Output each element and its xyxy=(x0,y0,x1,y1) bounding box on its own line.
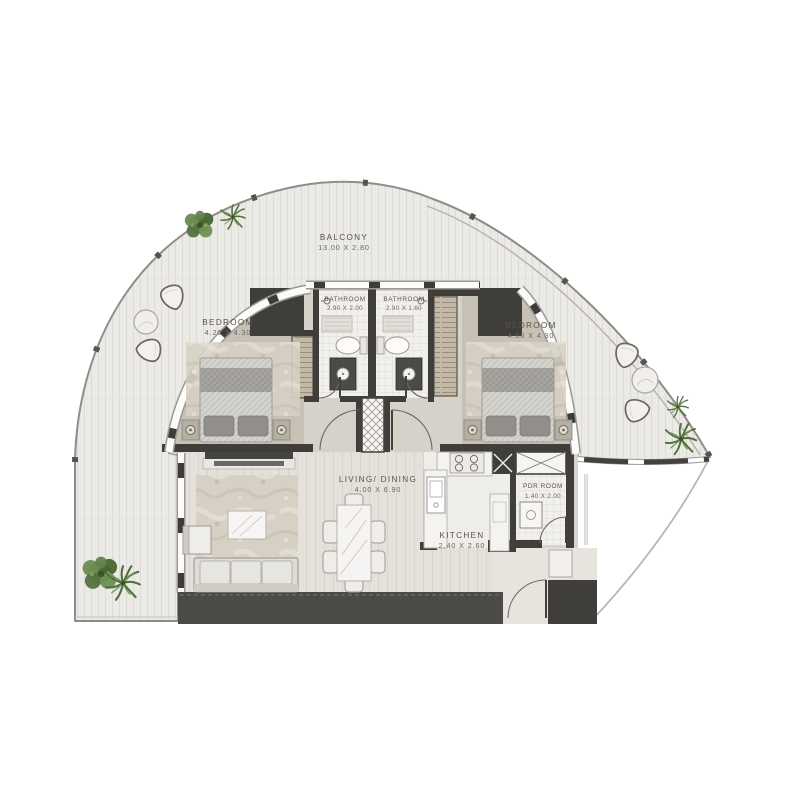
cooktop xyxy=(450,453,484,473)
pdr-shaft xyxy=(516,452,566,474)
room-label-living: LIVING/ DINING xyxy=(339,475,417,484)
room-label-bedroom-right: BEDROOM xyxy=(505,321,556,330)
plant-bush xyxy=(83,557,118,589)
room-label-bedroom-left: BEDROOM xyxy=(202,318,253,327)
nightstand-right xyxy=(273,420,290,440)
room-label-bathroom-right: BATHROOM xyxy=(383,296,424,303)
nightstand-left xyxy=(182,420,199,440)
balcony-railing-southeast xyxy=(578,459,709,462)
dining-table xyxy=(337,505,371,581)
peninsula-counter xyxy=(490,494,509,551)
dining-chair xyxy=(323,551,338,573)
hall-shaft xyxy=(362,398,384,452)
bed xyxy=(482,358,554,442)
room-dims-balcony: 13.00 X 2.80 xyxy=(318,243,370,252)
kitchen-shaft xyxy=(492,452,514,474)
room-dims-pdr: 1.40 X 2.00 xyxy=(525,493,561,500)
vanity-sink xyxy=(396,358,422,390)
room-dims-bedroom-right: 4.00 X 4.30 xyxy=(508,331,555,340)
nightstand-left xyxy=(464,420,481,440)
room-dims-kitchen: 2.40 X 2.60 xyxy=(439,541,486,550)
toilet xyxy=(336,337,367,354)
dining-chair xyxy=(370,521,385,543)
room-dims-bathroom-left: 2.90 X 2.00 xyxy=(327,305,363,312)
room-dims-bedroom-left: 4.20 X 4.30 xyxy=(205,328,252,337)
nightstand-right xyxy=(555,420,572,440)
outdoor-table xyxy=(632,367,658,393)
vanity-sink xyxy=(330,358,356,390)
shower-bench xyxy=(322,316,352,332)
entry-wall-block xyxy=(548,580,597,624)
pdr-sink xyxy=(520,502,542,528)
floor-plan: BALCONY 13.00 X 2.80 BEDROOM 4.20 X 4.30… xyxy=(0,0,800,800)
coffee-table xyxy=(228,511,266,539)
toilet xyxy=(377,337,409,354)
armchair xyxy=(183,526,211,554)
room-label-kitchen: KITCHEN xyxy=(439,531,484,540)
sofa xyxy=(194,558,298,592)
dining-chair xyxy=(323,521,338,543)
wardrobe-right xyxy=(434,296,457,396)
room-dims-bathroom-right: 2.90 X 1.60 xyxy=(386,305,422,312)
shower-bench xyxy=(383,316,413,332)
dining-chair xyxy=(370,551,385,573)
room-label-balcony: BALCONY xyxy=(320,233,368,242)
floor-plan-page: BALCONY 13.00 X 2.80 BEDROOM 4.20 X 4.30… xyxy=(0,0,800,800)
room-label-bathroom-left: BATHROOM xyxy=(324,296,365,303)
bedroom-right-furniture xyxy=(464,342,572,442)
tv-console xyxy=(203,452,295,469)
plant-bush xyxy=(185,211,214,238)
bed xyxy=(200,358,272,442)
room-dims-living: 4.00 X 6.90 xyxy=(355,485,402,494)
entry-closet xyxy=(549,550,572,577)
room-label-pdr: PDR ROOM xyxy=(523,483,563,490)
bottom-slab xyxy=(178,592,503,624)
building-edge-curve xyxy=(594,459,709,618)
bedroom-left-furniture xyxy=(182,342,300,442)
kitchen-sink xyxy=(427,477,445,513)
